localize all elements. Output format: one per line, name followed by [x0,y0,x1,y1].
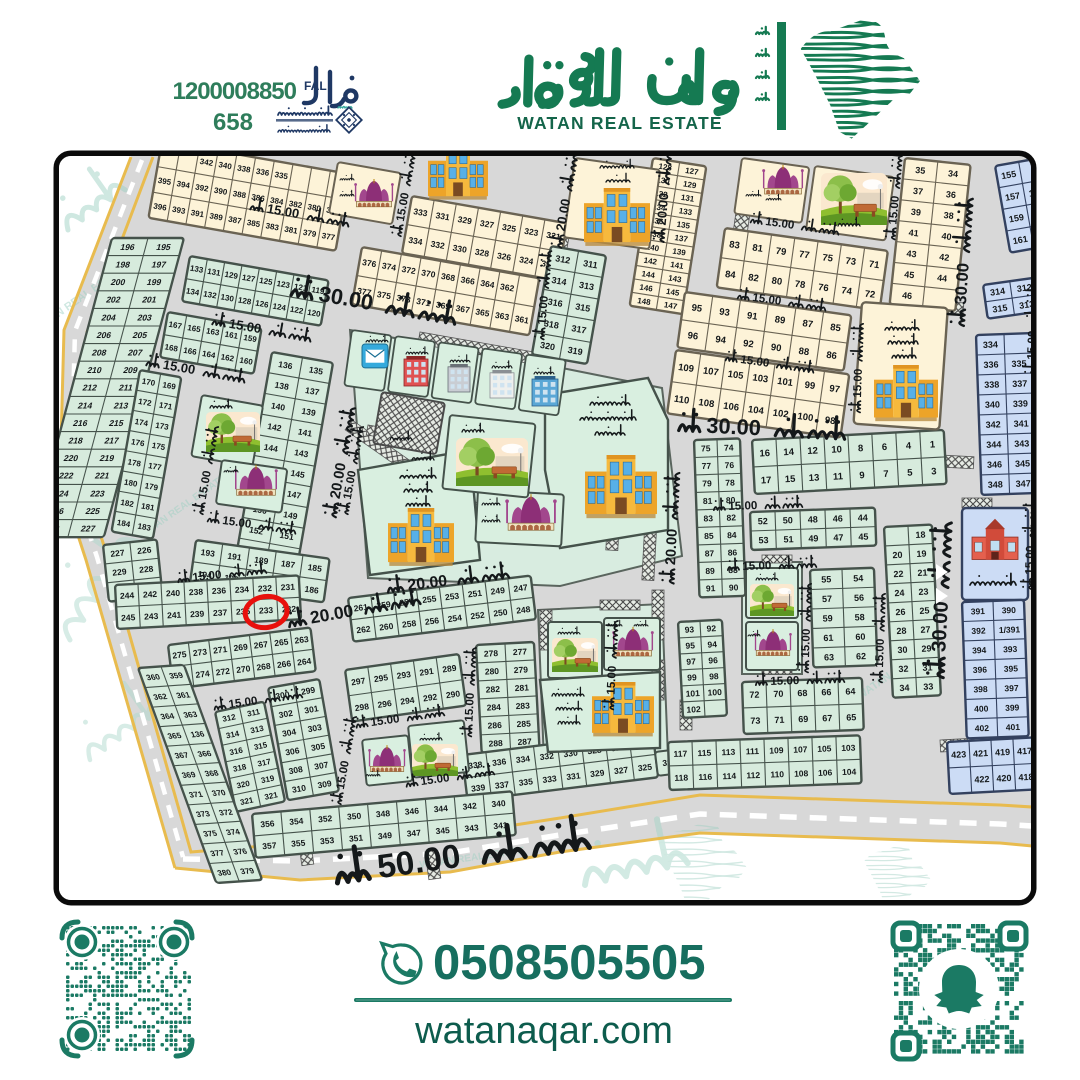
svg-text:338: 338 [984,379,999,390]
svg-text:76: 76 [817,282,829,294]
svg-text:111: 111 [746,746,760,756]
svg-text:245: 245 [121,612,136,623]
svg-text:15: 15 [785,474,797,486]
svg-text:336: 336 [983,359,998,370]
svg-text:334: 334 [515,753,531,765]
svg-text:217: 217 [103,436,120,446]
svg-text:253: 253 [444,591,460,603]
svg-text:325: 325 [637,762,653,774]
svg-text:356: 356 [260,818,275,829]
svg-text:228: 228 [139,563,154,574]
svg-text:206: 206 [96,330,113,340]
svg-text:196: 196 [119,242,136,252]
svg-text:331: 331 [566,770,582,782]
svg-text:395: 395 [1004,663,1019,673]
svg-text:402: 402 [975,723,990,733]
svg-text:101: 101 [776,376,794,389]
svg-text:265: 265 [274,636,290,648]
svg-text:117: 117 [673,748,687,758]
svg-text:297: 297 [350,675,366,687]
svg-text:30.00: 30.00 [951,262,973,305]
svg-text:66: 66 [821,687,831,697]
svg-text:333: 333 [542,773,558,785]
svg-text:59: 59 [823,613,833,623]
svg-text:422: 422 [974,774,990,785]
svg-text:50: 50 [783,515,793,525]
svg-text:343: 343 [464,822,479,833]
svg-text:113: 113 [721,747,735,757]
svg-text:216: 216 [72,418,89,428]
svg-text:243: 243 [144,611,159,622]
svg-text:260: 260 [379,621,395,633]
svg-text:62: 62 [856,651,866,661]
svg-text:43: 43 [906,248,917,259]
svg-text:15.00: 15.00 [873,638,887,667]
svg-text:9: 9 [859,470,865,481]
svg-text:315: 315 [992,303,1008,315]
svg-text:68: 68 [797,688,807,698]
svg-text:61: 61 [823,633,833,643]
svg-text:109: 109 [677,362,694,375]
svg-text:344: 344 [986,439,1001,450]
svg-text:233: 233 [259,605,274,616]
svg-text:394: 394 [972,645,987,655]
svg-text:277: 277 [513,646,528,657]
svg-text:41: 41 [908,228,919,239]
svg-text:108: 108 [794,768,809,778]
svg-text:392: 392 [971,625,986,635]
svg-text:21: 21 [917,567,928,578]
svg-text:270: 270 [236,663,252,675]
svg-text:89: 89 [705,566,715,576]
svg-text:352: 352 [318,813,333,824]
svg-text:336: 336 [491,756,507,768]
svg-text:213: 213 [113,400,130,410]
svg-text:14: 14 [783,447,795,459]
svg-text:40: 40 [941,231,952,242]
svg-text:264: 264 [297,656,313,668]
svg-text:103: 103 [752,372,769,385]
svg-text:350: 350 [347,811,362,822]
svg-text:296: 296 [377,698,393,710]
svg-text:242: 242 [143,589,158,600]
svg-text:8: 8 [858,443,864,454]
svg-text:75: 75 [701,443,711,453]
svg-text:420: 420 [996,773,1012,784]
svg-text:293: 293 [396,669,412,681]
svg-text:399: 399 [1005,702,1020,712]
svg-text:269: 269 [233,641,249,653]
svg-text:WATAN REAL ESTATE: WATAN REAL ESTATE [517,113,722,133]
svg-text:282: 282 [485,684,500,695]
svg-text:15.00: 15.00 [742,559,771,573]
svg-text:398: 398 [973,684,988,694]
svg-text:347: 347 [406,827,421,838]
svg-text:197: 197 [150,260,167,270]
svg-text:105: 105 [817,743,832,753]
svg-text:0508505505: 0508505505 [433,936,706,990]
svg-text:46: 46 [833,513,843,523]
svg-text:37: 37 [913,186,924,197]
svg-text:101: 101 [685,688,700,699]
svg-text:103: 103 [841,743,856,753]
svg-text:3: 3 [931,466,937,477]
svg-text:225: 225 [84,506,101,516]
svg-text:271: 271 [213,644,229,656]
svg-text:229: 229 [112,566,127,577]
svg-text:345: 345 [1015,458,1030,469]
svg-text:267: 267 [253,639,269,651]
svg-text:238: 238 [189,586,204,597]
svg-text:55: 55 [821,574,831,584]
svg-text:263: 263 [294,634,310,646]
svg-text:107: 107 [793,744,808,754]
svg-text:193: 193 [200,547,216,559]
svg-text:15.00: 15.00 [770,674,799,688]
svg-text:289: 289 [442,663,458,675]
svg-text:77: 77 [798,249,810,261]
svg-text:334: 334 [983,339,998,350]
svg-text:314: 314 [989,286,1005,298]
svg-text:42: 42 [939,252,950,263]
svg-text:280: 280 [485,666,500,677]
svg-text:337: 337 [1012,378,1027,389]
svg-text:423: 423 [951,749,967,760]
svg-text:109: 109 [769,745,784,755]
svg-text:274: 274 [195,668,211,680]
svg-text:240: 240 [166,588,181,599]
svg-text:51: 51 [783,534,793,544]
svg-text:100: 100 [707,687,722,698]
svg-text:351: 351 [348,833,363,844]
svg-text:254: 254 [447,612,463,624]
svg-text:290: 290 [445,688,461,700]
svg-text:262: 262 [356,624,372,636]
svg-text:71: 71 [774,715,784,725]
svg-text:93: 93 [719,306,731,318]
svg-text:90: 90 [770,342,782,354]
svg-text:110: 110 [673,394,690,407]
svg-text:419: 419 [995,747,1011,758]
svg-text:87: 87 [802,318,814,330]
svg-text:106: 106 [818,767,833,777]
svg-text:222: 222 [58,471,75,481]
svg-text:278: 278 [484,648,499,659]
svg-text:10: 10 [831,444,842,456]
svg-text:104: 104 [842,767,857,777]
svg-text:38: 38 [943,210,954,221]
svg-text:96: 96 [708,655,718,665]
svg-text:207: 207 [127,348,144,358]
svg-text:285: 285 [516,718,531,729]
svg-text:212: 212 [81,383,98,393]
svg-text:93: 93 [684,624,694,634]
svg-text:288: 288 [488,738,503,749]
svg-text:349: 349 [377,830,392,841]
svg-text:78: 78 [725,477,735,487]
svg-text:60: 60 [855,632,865,642]
svg-text:73: 73 [845,256,857,268]
svg-text:53: 53 [758,535,768,545]
svg-text:47: 47 [833,532,843,542]
svg-text:227: 227 [110,547,125,558]
svg-text:20: 20 [892,550,903,561]
svg-text:232: 232 [258,583,273,594]
svg-text:329: 329 [590,767,606,779]
svg-text:46: 46 [902,290,913,301]
svg-text:393: 393 [1003,644,1018,654]
svg-text:79: 79 [702,478,712,488]
svg-text:58: 58 [855,612,865,622]
svg-text:107: 107 [702,365,719,378]
svg-text:355: 355 [291,838,306,849]
svg-text:63: 63 [824,652,834,662]
svg-text:256: 256 [424,615,440,627]
svg-text:97: 97 [686,656,696,666]
svg-text:247: 247 [513,582,529,594]
svg-text:17: 17 [761,475,772,487]
svg-text:81: 81 [703,496,713,506]
svg-text:30: 30 [897,645,908,656]
svg-text:15.00: 15.00 [728,499,757,513]
svg-text:90: 90 [729,582,739,592]
svg-text:15.00: 15.00 [886,195,901,225]
svg-text:342: 342 [985,419,1000,430]
svg-text:346: 346 [404,806,419,817]
svg-text:400: 400 [974,703,989,713]
svg-text:49: 49 [808,533,818,543]
svg-text:286: 286 [487,720,502,731]
svg-text:354: 354 [289,816,304,827]
svg-text:258: 258 [401,618,417,630]
svg-text:275: 275 [172,649,188,661]
svg-text:94: 94 [707,639,717,649]
svg-text:227: 227 [80,524,97,534]
svg-text:73: 73 [750,716,760,726]
svg-text:357: 357 [262,840,277,851]
svg-text:35: 35 [915,165,926,176]
svg-text:353: 353 [320,835,335,846]
svg-text:397: 397 [1004,683,1019,693]
svg-text:200: 200 [110,277,127,287]
svg-text:347: 347 [1016,478,1031,489]
svg-text:105: 105 [727,369,745,382]
svg-text:44: 44 [858,513,868,523]
svg-text:102: 102 [772,408,789,421]
svg-text:244: 244 [120,590,135,601]
svg-text:95: 95 [685,640,695,650]
svg-text:80: 80 [771,275,783,287]
svg-text:287: 287 [517,736,532,747]
svg-text:84: 84 [727,530,737,540]
svg-text:82: 82 [726,512,736,522]
svg-text:18: 18 [915,530,926,541]
svg-text:114: 114 [722,771,736,781]
svg-text:106: 106 [722,401,739,414]
svg-text:79: 79 [775,246,787,258]
svg-text:348: 348 [988,479,1003,490]
svg-text:15.00: 15.00 [799,628,813,657]
svg-text:221: 221 [94,471,111,481]
svg-text:100: 100 [797,411,814,424]
svg-text:1200008850: 1200008850 [173,78,297,105]
svg-text:57: 57 [822,594,832,604]
svg-text:115: 115 [697,748,711,758]
svg-text:72: 72 [749,690,759,700]
svg-text:39: 39 [910,207,921,218]
svg-text:11: 11 [833,471,844,483]
svg-text:421: 421 [973,748,989,759]
svg-text:watanaqar.com: watanaqar.com [414,1010,673,1052]
svg-text:118: 118 [674,772,688,782]
svg-text:83: 83 [703,513,713,523]
svg-text:96: 96 [687,330,699,342]
svg-text:340: 340 [491,798,506,809]
svg-text:28: 28 [896,626,907,637]
svg-text:201: 201 [141,295,158,305]
svg-text:283: 283 [515,700,530,711]
svg-text:279: 279 [514,664,529,675]
svg-text:234: 234 [235,584,250,595]
svg-text:23: 23 [918,586,929,597]
svg-text:32: 32 [898,664,909,675]
svg-text:45: 45 [904,269,915,280]
svg-text:295: 295 [373,672,389,684]
svg-text:15.00: 15.00 [851,368,865,397]
svg-text:298: 298 [354,701,370,713]
svg-text:266: 266 [276,658,292,670]
svg-text:99: 99 [687,672,697,682]
svg-text:54: 54 [853,573,863,583]
svg-text:338: 338 [468,759,484,771]
svg-text:108: 108 [698,397,715,410]
svg-text:218: 218 [67,436,84,446]
svg-text:215: 215 [108,418,125,428]
svg-text:83: 83 [728,239,740,251]
svg-text:15.00: 15.00 [604,665,619,695]
svg-text:15.00: 15.00 [535,295,550,325]
svg-text:342: 342 [462,800,477,811]
svg-text:48: 48 [808,514,818,524]
svg-text:312: 312 [1016,282,1032,294]
svg-text:65: 65 [846,712,856,722]
svg-text:198: 198 [114,260,131,270]
svg-text:22: 22 [893,569,904,580]
svg-text:78: 78 [794,279,806,291]
svg-text:252: 252 [470,610,486,622]
svg-text:291: 291 [419,666,435,678]
svg-text:92: 92 [706,623,716,633]
svg-text:255: 255 [422,593,438,605]
svg-text:97: 97 [829,383,841,395]
svg-text:70: 70 [773,689,783,699]
svg-text:272: 272 [215,666,231,678]
svg-text:86: 86 [826,350,838,362]
svg-text:110: 110 [770,769,784,779]
svg-text:219: 219 [99,453,116,463]
svg-text:344: 344 [433,803,448,814]
svg-text:343: 343 [1014,438,1029,449]
svg-text:187: 187 [280,558,296,570]
svg-text:658: 658 [213,109,253,136]
svg-text:20.00: 20.00 [663,528,681,565]
svg-text:6: 6 [882,442,888,453]
svg-text:102: 102 [686,704,701,715]
svg-text:335: 335 [518,776,534,788]
svg-text:191: 191 [227,551,243,563]
svg-text:204: 204 [100,312,117,322]
svg-text:214: 214 [77,400,94,410]
svg-text:25: 25 [919,605,930,616]
svg-text:341: 341 [1013,418,1028,429]
svg-text:273: 273 [192,646,208,658]
svg-text:209: 209 [122,365,139,375]
svg-text:44: 44 [937,273,948,284]
svg-text:16: 16 [759,448,770,460]
svg-text:237: 237 [213,607,228,618]
svg-text:346: 346 [987,459,1002,470]
svg-text:396: 396 [973,664,988,674]
svg-text:56: 56 [854,593,864,603]
svg-text:185: 185 [307,562,323,574]
svg-text:241: 241 [167,610,182,621]
svg-text:284: 284 [486,702,501,713]
svg-text:268: 268 [256,661,272,673]
svg-text:250: 250 [493,607,509,619]
svg-text:292: 292 [422,692,438,704]
svg-text:401: 401 [1006,722,1021,732]
svg-text:195: 195 [155,242,172,252]
svg-text:15.00: 15.00 [462,692,477,722]
svg-text:339: 339 [1013,398,1028,409]
svg-text:87: 87 [705,548,715,558]
svg-text:205: 205 [132,330,149,340]
svg-text:82: 82 [747,272,759,284]
svg-text:85: 85 [704,531,714,541]
svg-text:36: 36 [945,189,956,200]
svg-text:327: 327 [613,764,629,776]
svg-text:226: 226 [137,545,152,556]
svg-text:98: 98 [709,671,719,681]
svg-text:345: 345 [435,825,450,836]
svg-text:7: 7 [883,469,889,480]
svg-text:281: 281 [514,682,529,693]
svg-text:116: 116 [698,772,712,782]
svg-text:202: 202 [105,295,122,305]
svg-text:208: 208 [91,348,108,358]
svg-text:294: 294 [400,695,416,707]
svg-text:211: 211 [118,383,135,393]
svg-text:69: 69 [798,714,808,724]
svg-text:210: 210 [86,365,103,375]
svg-text:390: 390 [1002,605,1017,615]
svg-text:249: 249 [490,585,506,597]
svg-text:92: 92 [742,338,754,350]
svg-text:1/391: 1/391 [999,624,1021,635]
svg-text:19: 19 [916,549,927,560]
svg-text:12: 12 [807,445,818,457]
svg-text:251: 251 [467,588,483,600]
svg-text:337: 337 [494,779,510,791]
svg-text:220: 220 [63,453,80,463]
svg-text:74: 74 [724,442,734,452]
svg-text:34: 34 [948,168,959,179]
svg-text:30.00: 30.00 [928,601,953,653]
svg-text:99: 99 [804,380,816,392]
svg-text:223: 223 [89,488,106,498]
svg-text:52: 52 [758,516,768,526]
svg-text:91: 91 [706,583,716,593]
